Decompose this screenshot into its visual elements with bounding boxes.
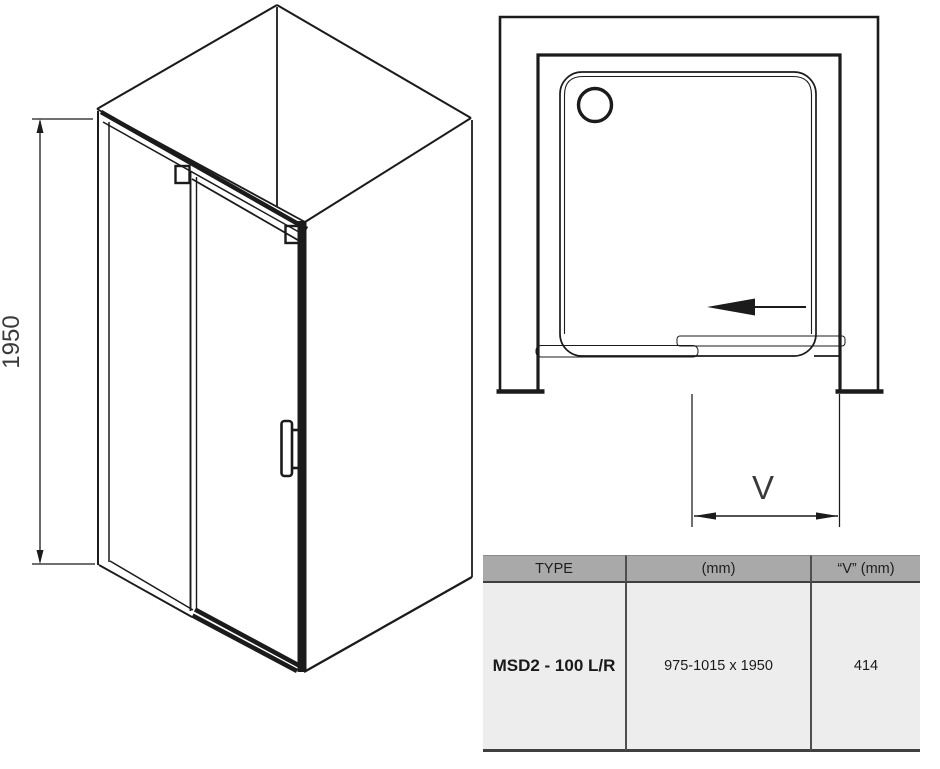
drain-circle (579, 89, 612, 122)
right-panel-bottom (304, 577, 472, 672)
spec-table: TYPE (mm) “V” (mm) MSD2 - 100 L/R 975-10… (483, 555, 920, 752)
v-arrow-right (816, 512, 838, 519)
v-arrow-left (694, 512, 716, 519)
isometric-view: 1950 (0, 0, 480, 700)
handle-bar (282, 421, 293, 476)
roof-edge-back-left (97, 5, 277, 109)
col-header-type: TYPE (483, 555, 625, 583)
cell-type-value: MSD2 - 100 L/R (483, 583, 625, 752)
right-side-panel (304, 120, 472, 672)
rail-lower-edge (103, 122, 306, 236)
height-dim-label: 1950 (0, 315, 25, 368)
page: { "colors": { "line": "#1b1b1b", "table_… (0, 0, 940, 769)
v-dimension: V (692, 394, 840, 527)
sliding-door (191, 171, 304, 672)
door-plan-profiles (536, 336, 845, 357)
enclosure-top-edges (97, 5, 471, 222)
col-header-v: “V” (mm) (810, 555, 920, 583)
cell-v-value: 414 (810, 583, 920, 752)
tray-inner-rim (565, 77, 812, 335)
tray-outline (560, 72, 816, 356)
v-dim-label: V (752, 469, 774, 506)
roof-edge-front-right (305, 118, 471, 222)
left-panel-bottom-outer (99, 565, 192, 617)
shower-tray (560, 72, 816, 356)
col-header-size: (mm) (625, 555, 810, 583)
arrow-head (707, 299, 755, 316)
height-dimension: 1950 (0, 119, 95, 564)
left-side-panel (98, 111, 193, 617)
dim-arrow-up (37, 119, 44, 133)
dim-arrow-down (37, 550, 44, 564)
wall-inner-boundary (538, 55, 840, 392)
door-handle (282, 421, 299, 476)
fixed-panel-bar (677, 336, 845, 346)
cell-size-value: 975-1015 x 1950 (625, 583, 810, 752)
slide-direction-arrow (707, 299, 806, 316)
bottom-rail-upper (195, 610, 299, 666)
left-panel-bottom-inner (110, 561, 193, 610)
roof-edge-back-right (277, 5, 471, 118)
plan-view: V (480, 0, 940, 540)
bottom-rail-lower (193, 616, 298, 672)
